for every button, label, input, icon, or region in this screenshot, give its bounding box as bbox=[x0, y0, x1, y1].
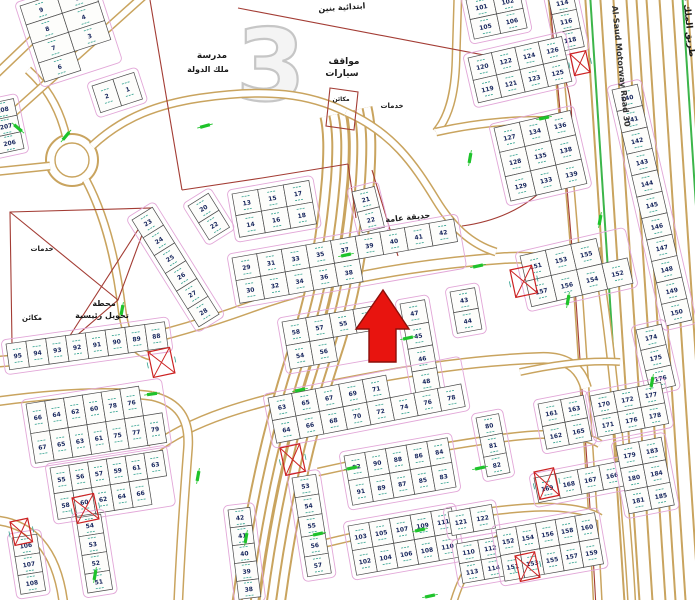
plot-number: 42 bbox=[236, 514, 245, 522]
plot-number: 89 bbox=[132, 336, 141, 344]
plot-number: 57 bbox=[313, 562, 322, 570]
plot-number: 41 bbox=[414, 233, 423, 241]
plot-number: 53 bbox=[88, 541, 97, 549]
plot-number: 64 bbox=[117, 493, 126, 501]
plot-number: 42 bbox=[439, 229, 448, 237]
plot-number: 55 bbox=[57, 476, 66, 484]
plot-number: 36 bbox=[320, 273, 329, 281]
plot-number: 53 bbox=[301, 483, 310, 491]
plot-number: 48 bbox=[422, 378, 431, 386]
plot-number: 57 bbox=[315, 324, 324, 332]
plot-number: 88 bbox=[393, 456, 402, 464]
block-number-watermark: 3 bbox=[236, 7, 306, 124]
plot-number: 54 bbox=[295, 352, 304, 360]
plot-number: 35 bbox=[316, 251, 325, 259]
plot-number: 31 bbox=[266, 259, 275, 267]
plot-number: 95 bbox=[13, 352, 22, 360]
plot-number: 56 bbox=[310, 542, 319, 550]
plot-number: 62 bbox=[98, 496, 107, 504]
plot-number: 16 bbox=[272, 216, 281, 224]
plot-number: 84 bbox=[435, 449, 444, 457]
plot-number: 56 bbox=[76, 473, 85, 481]
plot-number: 77 bbox=[132, 429, 141, 437]
plot-number: 29 bbox=[242, 264, 251, 272]
plot-number: 93 bbox=[53, 347, 62, 355]
plot-number: 13 bbox=[242, 199, 251, 207]
plot-number: 63 bbox=[151, 461, 160, 469]
plot-number: 46 bbox=[418, 355, 427, 363]
plot-number: 30 bbox=[246, 286, 255, 294]
label-school-name-2: ملك الدولة bbox=[187, 65, 229, 74]
plot-number: 89 bbox=[377, 484, 386, 492]
plot-number: 86 bbox=[414, 452, 423, 460]
plot-number: 67 bbox=[38, 444, 47, 452]
plot-number: 14 bbox=[246, 221, 255, 229]
plot-number: 58 bbox=[61, 502, 70, 510]
plot-number: 64 bbox=[52, 411, 61, 419]
plot-number: 60 bbox=[80, 499, 89, 507]
plot-number: 15 bbox=[268, 195, 277, 203]
plot-number: 83 bbox=[439, 473, 448, 481]
cadastral-map-screenshot: 3 bbox=[0, 0, 695, 600]
plot-number: 39 bbox=[242, 568, 251, 576]
label-services-east: خدمات bbox=[380, 102, 403, 110]
plot-number: 39 bbox=[365, 242, 374, 250]
label-machines-west: مكائن bbox=[22, 314, 42, 322]
plot-number: 40 bbox=[389, 238, 398, 246]
plot-number: 55 bbox=[339, 320, 348, 328]
plot-number: 33 bbox=[291, 255, 300, 263]
label-machines-north: مكائن bbox=[332, 96, 349, 103]
label-school-name-1: مدرسة bbox=[197, 51, 227, 61]
plot-number: 17 bbox=[293, 190, 302, 198]
plot-number: 18 bbox=[297, 212, 306, 220]
plot-number: 44 bbox=[463, 317, 472, 325]
label-transformer-station-1: محطة bbox=[92, 299, 115, 308]
plot-number: 54 bbox=[304, 502, 313, 510]
plot-number: 58 bbox=[291, 328, 300, 336]
cadastral-map[interactable]: 3 bbox=[0, 0, 695, 600]
plot-number: 59 bbox=[113, 467, 122, 475]
plot-number: 87 bbox=[398, 480, 407, 488]
plot-number: 94 bbox=[33, 349, 42, 357]
plot-number: 62 bbox=[71, 408, 80, 416]
plot-number: 61 bbox=[94, 435, 103, 443]
plot-number: 61 bbox=[132, 464, 141, 472]
plot-number: 47 bbox=[410, 310, 419, 318]
plot-number: 79 bbox=[150, 426, 159, 434]
plot-number: 34 bbox=[295, 278, 304, 286]
plot-number: 91 bbox=[356, 488, 365, 496]
label-transformer-station-2: تحويل رئيسية bbox=[75, 311, 129, 320]
plot-number: 60 bbox=[89, 405, 98, 413]
plot-number: 66 bbox=[136, 490, 145, 498]
plot-number: 90 bbox=[373, 459, 382, 467]
plot-number: 32 bbox=[270, 282, 279, 290]
plot-number: 88 bbox=[152, 333, 161, 341]
plot-number: 91 bbox=[92, 341, 101, 349]
plot-number: 92 bbox=[73, 344, 82, 352]
plot-number: 76 bbox=[127, 399, 136, 407]
plot-number: 57 bbox=[94, 470, 103, 478]
plot-number: 66 bbox=[33, 414, 42, 422]
label-services-west: خدمات bbox=[30, 245, 53, 253]
label-car-parking-2: سيارات bbox=[325, 69, 358, 79]
plot-number: 54 bbox=[85, 522, 94, 530]
plot-number: 56 bbox=[319, 348, 328, 356]
plot-number: 55 bbox=[307, 522, 316, 530]
plot-number: 43 bbox=[460, 297, 469, 305]
plot-number: 63 bbox=[75, 438, 84, 446]
label-car-parking-1: مواقف bbox=[329, 57, 360, 67]
plot-number: 52 bbox=[91, 560, 100, 568]
plot-number: 38 bbox=[244, 586, 253, 594]
plot-number: 38 bbox=[344, 269, 353, 277]
plot-number: 78 bbox=[108, 402, 117, 410]
plot-number: 90 bbox=[112, 338, 121, 346]
plot-number: 85 bbox=[418, 477, 427, 485]
plot-number: 40 bbox=[240, 550, 249, 558]
plot-number: 75 bbox=[113, 432, 122, 440]
plot-number: 65 bbox=[57, 441, 66, 449]
